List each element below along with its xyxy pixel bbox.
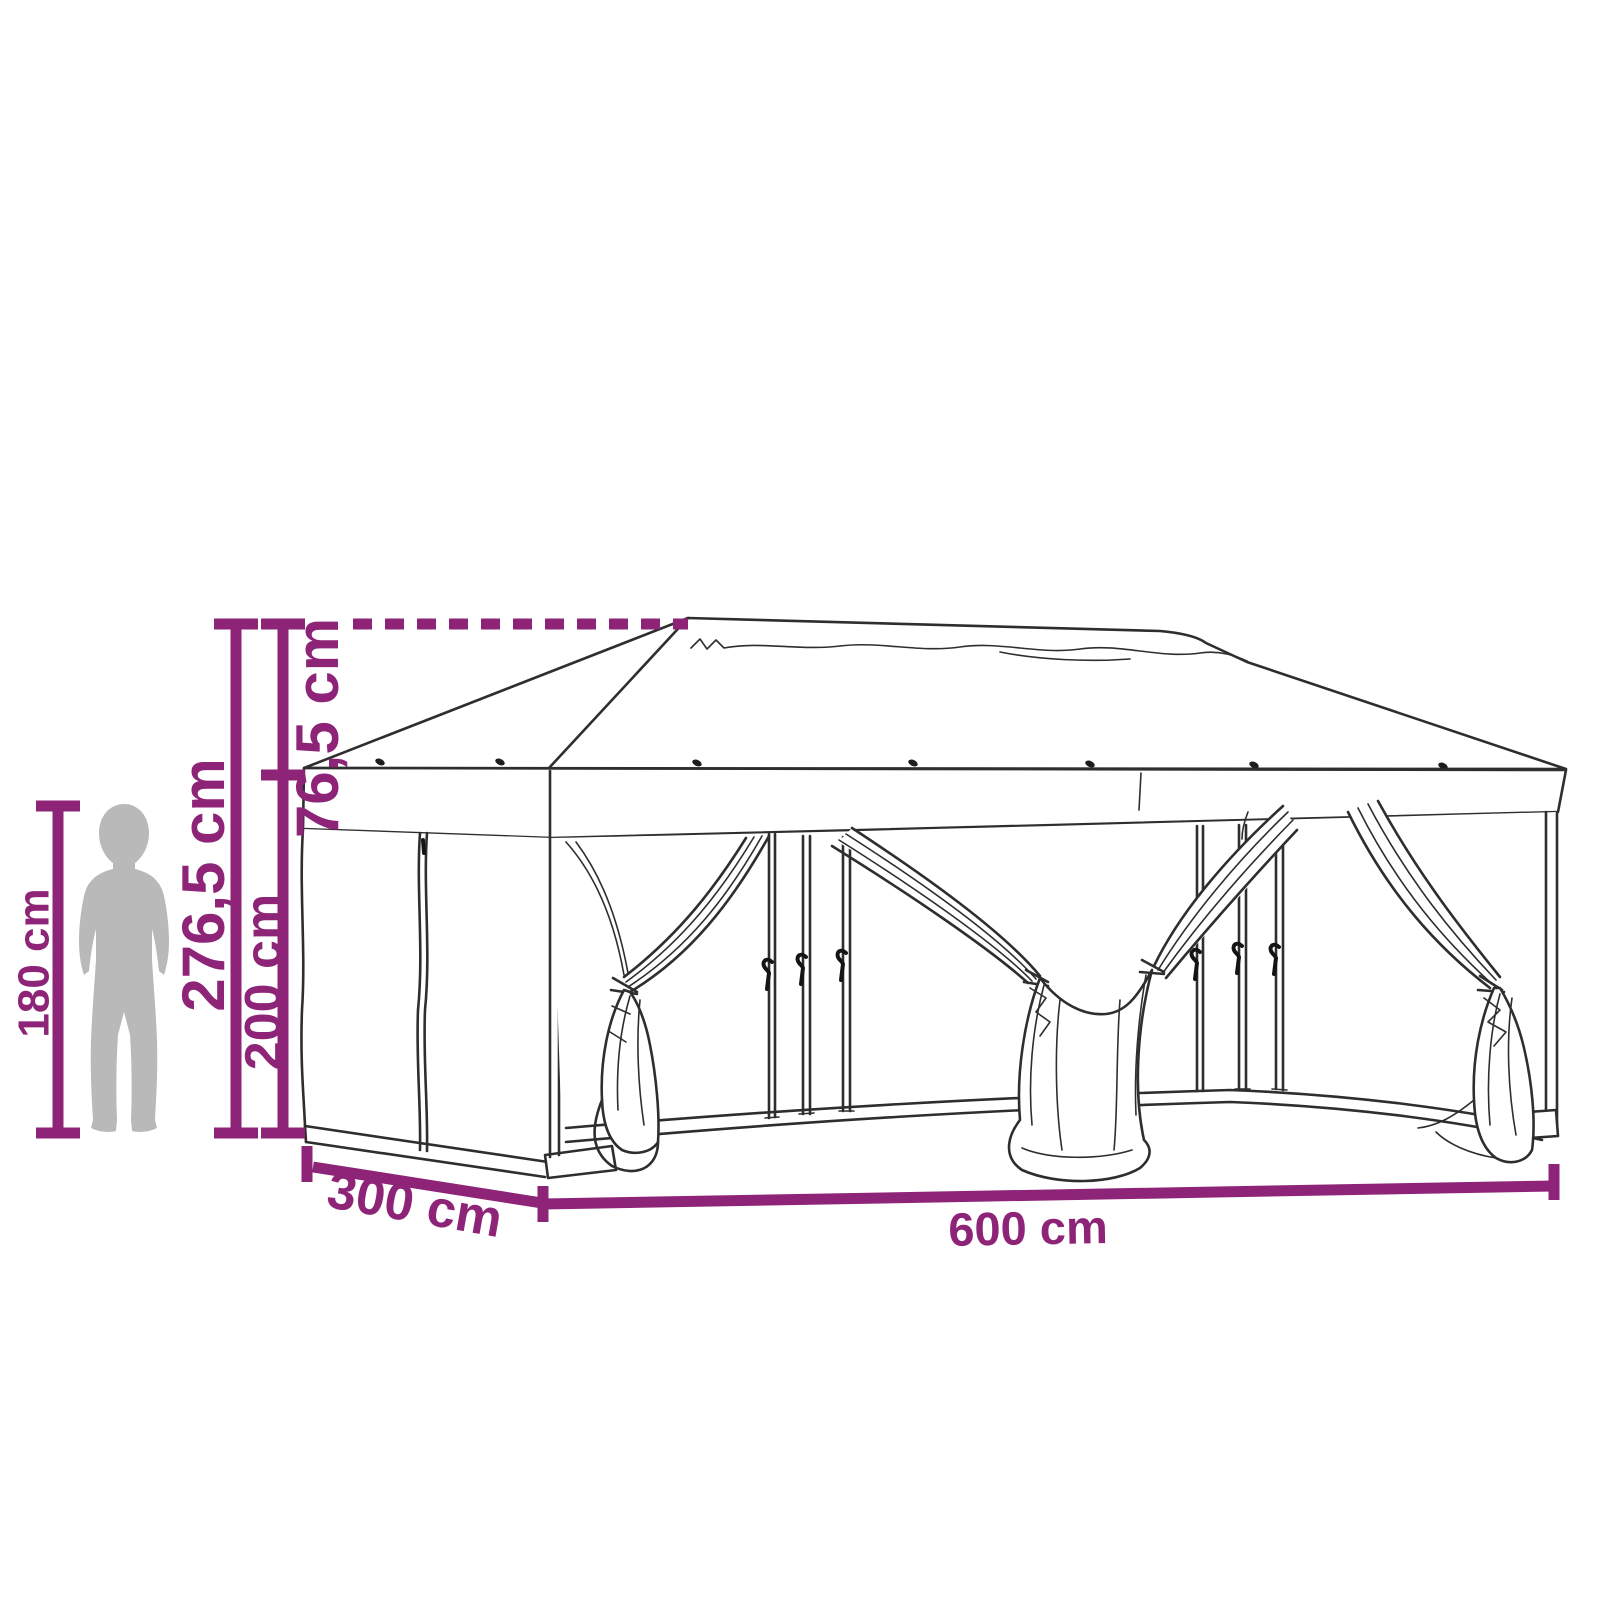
dimension-roof-height: 76,5 cm: [261, 618, 351, 838]
label-person-height: 180 cm: [9, 888, 58, 1037]
label-wall-height: 200 cm: [235, 894, 293, 1070]
label-total-height: 276,5 cm: [170, 758, 237, 1012]
roof-outline: [304, 618, 1566, 769]
left-wall-hem-cap: [305, 1126, 306, 1142]
gazebo-dimension-drawing: 276,5 cm 76,5 cm 200 cm 180 cm 300: [0, 0, 1600, 1600]
gazebo-illustration: [301, 618, 1566, 1182]
label-depth: 300 cm: [323, 1161, 507, 1249]
roof: [304, 618, 1566, 771]
left-wall-zipper-slider: [423, 840, 424, 853]
human-silhouette: [79, 804, 169, 1132]
dimension-person-height: 180 cm: [9, 806, 80, 1133]
label-roof-height: 76,5 cm: [284, 618, 351, 838]
label-width: 600 cm: [948, 1200, 1108, 1256]
dimension-diagram: 276,5 cm 76,5 cm 200 cm 180 cm 300: [0, 0, 1600, 1600]
